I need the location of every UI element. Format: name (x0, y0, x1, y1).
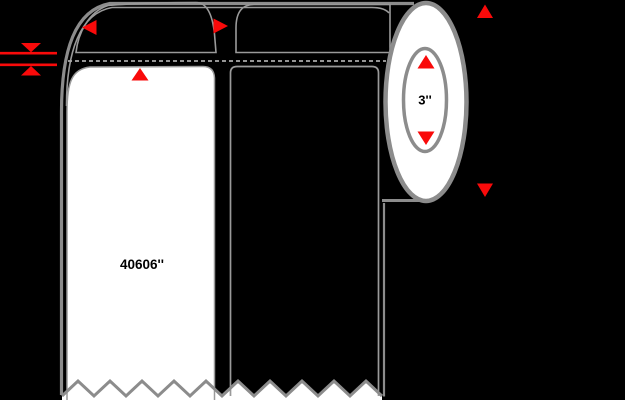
label-part-number: 40606'' (120, 257, 164, 272)
label-front-white (67, 67, 215, 400)
diagram-canvas: 3'' 40606'' (0, 0, 625, 400)
label-roll-diagram: 3'' 40606'' (0, 0, 625, 400)
core-diameter-label: 3'' (418, 93, 431, 108)
